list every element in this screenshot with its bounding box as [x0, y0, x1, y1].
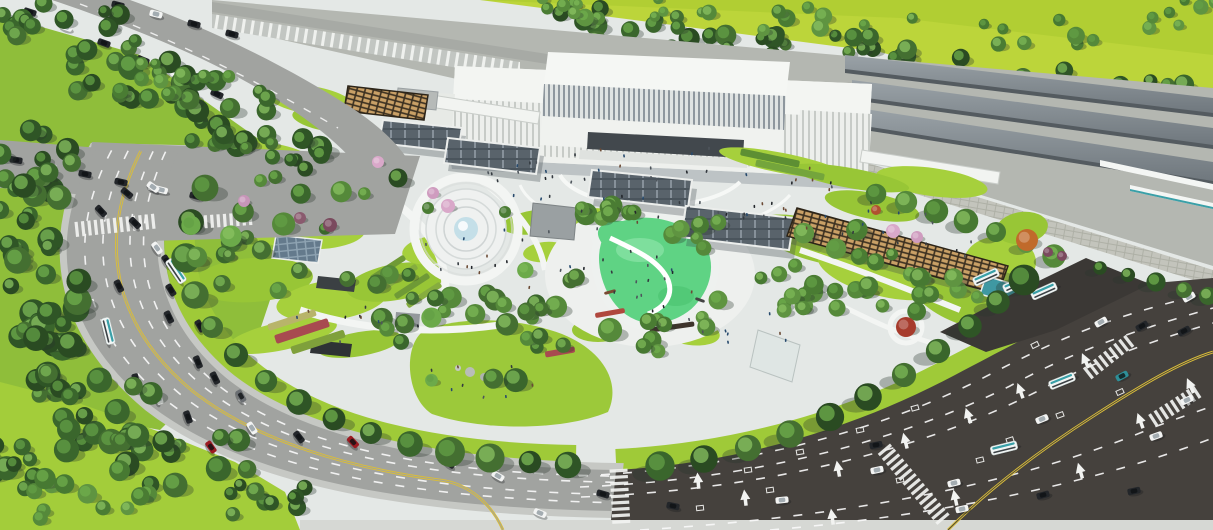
tree-canopy-highlight	[395, 335, 404, 344]
pedestrian	[339, 340, 341, 343]
tree-canopy-highlight	[85, 423, 98, 436]
tree-canopy-highlight	[259, 127, 270, 138]
pedestrian	[457, 262, 459, 265]
tree-canopy-highlight	[65, 155, 75, 165]
tree-canopy-highlight	[1165, 8, 1171, 14]
tree-canopy-highlight	[1148, 13, 1155, 20]
tree-canopy-highlight	[946, 270, 956, 280]
tree-canopy-highlight	[14, 176, 27, 189]
tree-canopy-highlight	[241, 143, 248, 150]
tree-canopy-highlight	[289, 392, 303, 406]
tree-canopy-highlight	[846, 30, 856, 40]
tree-canopy-highlight	[853, 249, 862, 258]
tree-canopy-highlight	[235, 480, 242, 487]
tree-canopy-highlight	[38, 266, 49, 277]
tree-canopy-highlight	[57, 440, 71, 454]
tree-canopy-highlight	[184, 284, 199, 299]
tree-canopy-highlight	[37, 470, 49, 482]
tree-canopy-highlight	[798, 302, 806, 310]
tree-canopy-highlight	[671, 11, 679, 19]
tree-canopy-highlight	[887, 249, 894, 256]
tree-canopy-highlight	[80, 486, 91, 497]
tree-canopy-highlight	[704, 29, 713, 38]
tree-canopy-highlight	[849, 283, 859, 293]
ornamental-tree-highlight	[443, 201, 450, 208]
tree-canopy-highlight	[126, 379, 136, 389]
tree-canopy-highlight	[927, 201, 940, 214]
tree-canopy-highlight	[298, 481, 307, 490]
tree-canopy-highlight	[63, 389, 73, 399]
ornamental-tree-highlight	[240, 197, 246, 203]
tree-canopy-highlight	[593, 2, 602, 11]
pedestrian	[381, 321, 383, 324]
tree-canopy-highlight	[122, 503, 130, 511]
tree-canopy-highlight	[577, 203, 585, 211]
tree-canopy-highlight	[779, 423, 794, 438]
tree-canopy-highlight	[107, 401, 121, 415]
tree-canopy-highlight	[222, 100, 233, 111]
tree-canopy-highlight	[860, 20, 866, 26]
tree-canopy-highlight	[391, 170, 401, 180]
crosswalk	[609, 469, 630, 524]
tree-canopy-highlight	[703, 6, 712, 15]
tree-canopy-highlight	[674, 222, 684, 232]
tree-canopy-highlight	[1144, 22, 1152, 30]
tree-canopy-highlight	[828, 240, 839, 251]
tree-canopy-highlight	[101, 20, 111, 30]
tree-canopy-highlight	[40, 304, 53, 317]
tree-canopy-highlight	[988, 224, 999, 235]
tree-canopy-highlight	[16, 440, 25, 449]
ornamental-tree-highlight	[899, 320, 909, 330]
car-cabin	[778, 497, 785, 502]
tree-canopy-highlight	[989, 292, 1002, 305]
tree-canopy-highlight	[112, 6, 123, 17]
tree-canopy-highlight	[868, 186, 879, 197]
pedestrian	[552, 175, 554, 178]
pedestrian	[708, 147, 710, 150]
pedestrian	[486, 254, 488, 257]
tree-canopy-highlight	[467, 306, 478, 317]
tree-canopy-highlight	[223, 227, 235, 239]
tree-canopy-highlight	[60, 420, 73, 433]
pedestrian	[824, 215, 826, 218]
tree-canopy-highlight	[112, 462, 124, 474]
tree-canopy-highlight	[57, 317, 66, 326]
tree-canopy-highlight	[257, 372, 269, 384]
tree-canopy-highlight	[155, 432, 167, 444]
tree-canopy-highlight	[85, 76, 95, 86]
tree-canopy-highlight	[141, 90, 152, 101]
tree-canopy-highlight	[954, 50, 964, 60]
pedestrian	[360, 316, 362, 319]
tree-canopy-highlight	[128, 426, 141, 439]
tree-canopy-highlight	[286, 155, 293, 162]
pedestrian	[602, 258, 604, 261]
tree-canopy-highlight	[569, 270, 579, 280]
tree-canopy-highlight	[183, 217, 194, 228]
tree-canopy-highlight	[693, 448, 708, 463]
tree-canopy-highlight	[877, 300, 885, 308]
tree-canopy-highlight	[924, 287, 933, 296]
tree-canopy-highlight	[267, 138, 274, 145]
pedestrian	[753, 205, 755, 208]
tree-canopy-highlight	[522, 332, 530, 340]
tree-canopy-highlight	[697, 312, 704, 319]
pedestrian	[771, 202, 773, 205]
pedestrian	[647, 264, 649, 267]
tree-canopy-highlight	[857, 386, 872, 401]
tree-canopy-highlight	[114, 84, 123, 93]
tree-canopy-highlight	[215, 277, 225, 287]
tree-canopy-highlight	[819, 406, 835, 422]
pedestrian	[769, 312, 771, 315]
pedestrian	[656, 255, 658, 258]
tree-canopy-highlight	[97, 502, 105, 510]
pedestrian	[812, 178, 814, 181]
tree-canopy-highlight	[961, 316, 974, 329]
tree-canopy-highlight	[370, 276, 381, 287]
tree-canopy-highlight	[78, 409, 88, 419]
tree-canopy-highlight	[773, 268, 782, 277]
tree-canopy-highlight	[28, 485, 37, 494]
pedestrian	[930, 267, 932, 270]
tree-canopy-highlight	[69, 271, 83, 285]
pedestrian	[809, 167, 811, 170]
pedestrian	[425, 243, 427, 246]
tree-canopy-highlight	[248, 484, 258, 494]
tree-canopy-highlight	[829, 284, 838, 293]
tree-canopy-highlight	[439, 306, 447, 314]
tree-canopy-highlight	[1175, 21, 1181, 27]
tree-canopy-highlight	[43, 241, 52, 250]
tree-canopy-highlight	[796, 225, 807, 236]
tree-canopy-highlight	[70, 83, 81, 94]
tree-canopy-highlight	[861, 278, 872, 289]
ornamental-tree-highlight	[1019, 232, 1030, 243]
tree-canopy-highlight	[574, 0, 580, 6]
tree-canopy-highlight	[543, 4, 550, 11]
tree-canopy-highlight	[163, 88, 171, 96]
tree-canopy-highlight	[209, 458, 223, 472]
tree-canopy-highlight	[240, 462, 250, 472]
tree-canopy-highlight	[558, 454, 573, 469]
tree-canopy-highlight	[267, 151, 275, 159]
tree-canopy-highlight	[637, 340, 646, 349]
tree-canopy-highlight	[790, 260, 798, 268]
tree-canopy-highlight	[108, 54, 119, 65]
tree-canopy-highlight	[130, 35, 137, 42]
solar-canopy-2	[272, 235, 322, 263]
tree-canopy-highlight	[889, 52, 897, 60]
tree-canopy-highlight	[293, 264, 302, 273]
tree-canopy-highlight	[1, 237, 12, 248]
tree-canopy-highlight	[333, 183, 345, 195]
scene-canvas	[0, 0, 1213, 530]
tree-canopy-highlight	[929, 341, 942, 354]
tree-canopy-highlight	[1095, 262, 1102, 269]
tree-canopy-highlight	[373, 310, 385, 322]
tree-canopy-highlight	[659, 7, 665, 13]
tree-canopy-highlight	[382, 267, 392, 277]
ornamental-tree-highlight	[1044, 248, 1049, 253]
tree-canopy-highlight	[189, 249, 200, 260]
pedestrian	[743, 216, 745, 219]
tree-canopy-highlight	[90, 370, 104, 384]
tree-canopy-highlight	[1149, 274, 1160, 285]
tree-canopy-highlight	[227, 508, 235, 516]
tree-canopy-highlight	[498, 315, 510, 327]
tree-canopy-highlight	[869, 255, 879, 265]
tree-canopy-highlight	[294, 132, 304, 142]
tree-canopy-highlight	[438, 440, 454, 456]
tree-canopy-highlight	[535, 303, 543, 311]
sidewalk-bottom	[300, 520, 1213, 530]
tree-canopy-highlight	[261, 91, 270, 100]
tree-canopy-highlight	[993, 38, 1001, 46]
tree-canopy-highlight	[972, 292, 979, 299]
ornamental-tree-highlight	[1058, 252, 1063, 257]
tree-canopy-highlight	[57, 476, 68, 487]
tree-canopy-highlight	[41, 366, 52, 377]
tree-canopy-highlight	[1088, 35, 1095, 42]
tree-canopy-highlight	[226, 488, 233, 495]
pedestrian	[471, 266, 473, 269]
tree-canopy-highlight	[486, 371, 497, 382]
tree-canopy-highlight	[136, 73, 144, 81]
tree-canopy-highlight	[558, 0, 565, 7]
tree-canopy-highlight	[778, 304, 786, 312]
tree-canopy-highlight	[199, 71, 207, 79]
tree-canopy-highlight	[603, 206, 613, 216]
ornamental-tree-highlight	[374, 158, 380, 164]
tree-canopy-highlight	[507, 370, 520, 383]
tree-canopy-highlight	[649, 454, 665, 470]
fountain-spray	[458, 221, 468, 231]
tree-canopy-highlight	[41, 164, 52, 175]
tree-canopy-highlight	[957, 211, 971, 225]
tree-canopy-highlight	[100, 6, 107, 13]
tree-canopy-highlight	[36, 152, 45, 161]
tree-canopy-highlight	[601, 320, 614, 333]
pedestrian	[656, 178, 658, 181]
tree-canopy-highlight	[19, 482, 28, 491]
tree-canopy-highlight	[738, 437, 752, 451]
tree-canopy-highlight	[1069, 28, 1079, 38]
tree-canopy-highlight	[224, 71, 231, 78]
tree-canopy-highlight	[227, 345, 240, 358]
tree-canopy-highlight	[176, 68, 185, 77]
tree-canopy-highlight	[57, 12, 68, 23]
tree-canopy-highlight	[1019, 37, 1027, 45]
tree-canopy-highlight	[341, 273, 350, 282]
pedestrian	[791, 181, 793, 184]
tree-canopy-highlight	[642, 315, 651, 324]
pedestrian	[828, 188, 830, 191]
tree-canopy-highlight	[1123, 269, 1131, 277]
tree-canopy-highlight	[1201, 289, 1211, 299]
tree-canopy-highlight	[186, 135, 194, 143]
tree-canopy-highlight	[569, 8, 576, 15]
pedestrian	[743, 212, 745, 215]
ornamental-tree-highlight	[913, 233, 919, 239]
pedestrian	[529, 161, 531, 164]
tree-canopy-highlight	[999, 24, 1005, 30]
tree-canopy-highlight	[256, 175, 263, 182]
tree-canopy-highlight	[50, 187, 64, 201]
tree-canopy-highlight	[479, 446, 495, 462]
ornamental-tree-highlight	[429, 189, 435, 195]
pedestrian	[640, 294, 642, 297]
tree-canopy-highlight	[34, 512, 42, 520]
tree-canopy-highlight	[519, 264, 528, 273]
tree-canopy-highlight	[299, 162, 308, 171]
tree-canopy-highlight	[849, 221, 861, 233]
pedestrian	[494, 264, 496, 267]
pedestrian	[652, 309, 654, 312]
tree-canopy-highlight	[121, 57, 135, 71]
tree-canopy-highlight	[254, 242, 265, 253]
ornamental-tree-highlight	[872, 206, 877, 211]
tree-canopy-highlight	[397, 316, 408, 327]
pedestrian	[783, 207, 785, 210]
tree-canopy-highlight	[759, 25, 766, 32]
pedestrian	[964, 254, 966, 257]
tree-canopy-highlight	[359, 189, 366, 196]
tree-canopy-highlight	[623, 23, 633, 33]
tree-canopy-highlight	[1057, 63, 1067, 73]
pedestrian	[513, 194, 515, 197]
tree-canopy-highlight	[7, 250, 22, 265]
tree-canopy-highlight	[899, 41, 910, 52]
tree-canopy-highlight	[270, 171, 278, 179]
tree-canopy-highlight	[52, 381, 63, 392]
pedestrian	[898, 211, 900, 214]
tree-canopy-highlight	[1195, 1, 1203, 9]
tree-canopy-highlight	[698, 242, 707, 251]
tree-canopy-highlight	[712, 216, 721, 225]
tree-canopy-highlight	[427, 375, 434, 382]
tree-canopy-highlight	[1145, 76, 1153, 84]
tree-canopy-highlight	[5, 279, 14, 288]
pedestrian	[522, 238, 524, 241]
tree-canopy-highlight	[204, 318, 216, 330]
tree-canopy-highlight	[59, 140, 72, 153]
tree-canopy-highlight	[912, 269, 923, 280]
tree-canopy-highlight	[651, 12, 657, 18]
tree-canopy-highlight	[497, 298, 506, 307]
tree-canopy-highlight	[718, 27, 730, 39]
tree-canopy-highlight	[363, 424, 375, 436]
tree-canopy-highlight	[407, 293, 414, 300]
tree-canopy-highlight	[195, 177, 210, 192]
tree-canopy-highlight	[8, 458, 17, 467]
pedestrian	[970, 240, 972, 243]
pedestrian	[785, 339, 787, 342]
pedestrian	[466, 265, 468, 268]
ornamental-tree-highlight	[888, 226, 895, 233]
tree-canopy-highlight	[22, 122, 34, 134]
tree-canopy-highlight	[803, 3, 810, 10]
ornamental-tree-highlight	[325, 220, 332, 227]
pedestrian	[779, 332, 781, 335]
tree-canopy-highlight	[519, 304, 529, 314]
pedestrian	[642, 196, 644, 199]
tree-canopy-highlight	[693, 218, 703, 228]
tree-canopy-highlight	[557, 339, 565, 347]
tree-canopy-highlight	[756, 273, 763, 280]
tree-canopy-highlight	[908, 14, 914, 20]
pedestrian	[868, 210, 870, 213]
tree-canopy-highlight	[19, 213, 29, 223]
tree-canopy-highlight	[26, 328, 40, 342]
ornamental-tree-highlight	[296, 214, 302, 220]
pedestrian	[621, 195, 623, 198]
tree-canopy-highlight	[863, 29, 873, 39]
tree-canopy-highlight	[895, 365, 908, 378]
tree-canopy-highlight	[275, 215, 288, 228]
ornamental-tree-highlight	[424, 204, 430, 210]
tree-canopy-highlight	[26, 19, 35, 28]
tree-canopy-highlight	[161, 53, 173, 65]
tree-canopy-highlight	[830, 301, 839, 310]
tree-canopy-highlight	[224, 250, 231, 257]
tree-canopy-highlight	[817, 9, 827, 19]
pedestrian	[549, 195, 551, 198]
pedestrian	[365, 306, 367, 309]
tree-canopy-highlight	[216, 127, 227, 138]
tree-canopy-highlight	[909, 304, 919, 314]
tree-canopy-highlight	[133, 489, 143, 499]
tree-canopy-highlight	[806, 277, 817, 288]
pedestrian	[636, 221, 638, 224]
tree-canopy-highlight	[429, 291, 438, 300]
tree-canopy-highlight	[289, 492, 296, 499]
tree-canopy-highlight	[844, 47, 851, 54]
tree-canopy-highlight	[293, 185, 304, 196]
tree-canopy-highlight	[166, 475, 180, 489]
tree-canopy-highlight	[672, 22, 680, 30]
tree-canopy-highlight	[115, 434, 125, 444]
tree-canopy-highlight	[325, 410, 338, 423]
pedestrian	[574, 153, 576, 156]
pedestrian	[548, 230, 550, 233]
tree-canopy-highlight	[79, 41, 91, 53]
pedestrian	[451, 388, 453, 391]
kiosk-box-2	[530, 203, 577, 240]
pedestrian	[603, 197, 605, 200]
tree-canopy-highlight	[711, 292, 721, 302]
tree-canopy-highlight	[214, 430, 223, 439]
ornamental-tree-highlight	[501, 208, 507, 214]
pedestrian	[699, 201, 701, 204]
tree-canopy-highlight	[1054, 15, 1061, 22]
tree-canopy-highlight	[980, 20, 986, 26]
tree-canopy-highlight	[424, 309, 435, 320]
tree-canopy-highlight	[897, 193, 909, 205]
tree-canopy-highlight	[272, 283, 282, 293]
tree-canopy-highlight	[1012, 268, 1029, 285]
tree-canopy-highlight	[60, 334, 74, 348]
rock-1	[465, 367, 475, 377]
tree-canopy-highlight	[521, 453, 533, 465]
tree-canopy-highlight	[403, 269, 411, 277]
tree-canopy-highlight	[151, 60, 157, 66]
tree-canopy-highlight	[699, 320, 709, 330]
tree-canopy-highlight	[9, 28, 20, 39]
pedestrian	[504, 228, 506, 231]
aerial-render-station-plaza	[0, 0, 1213, 530]
